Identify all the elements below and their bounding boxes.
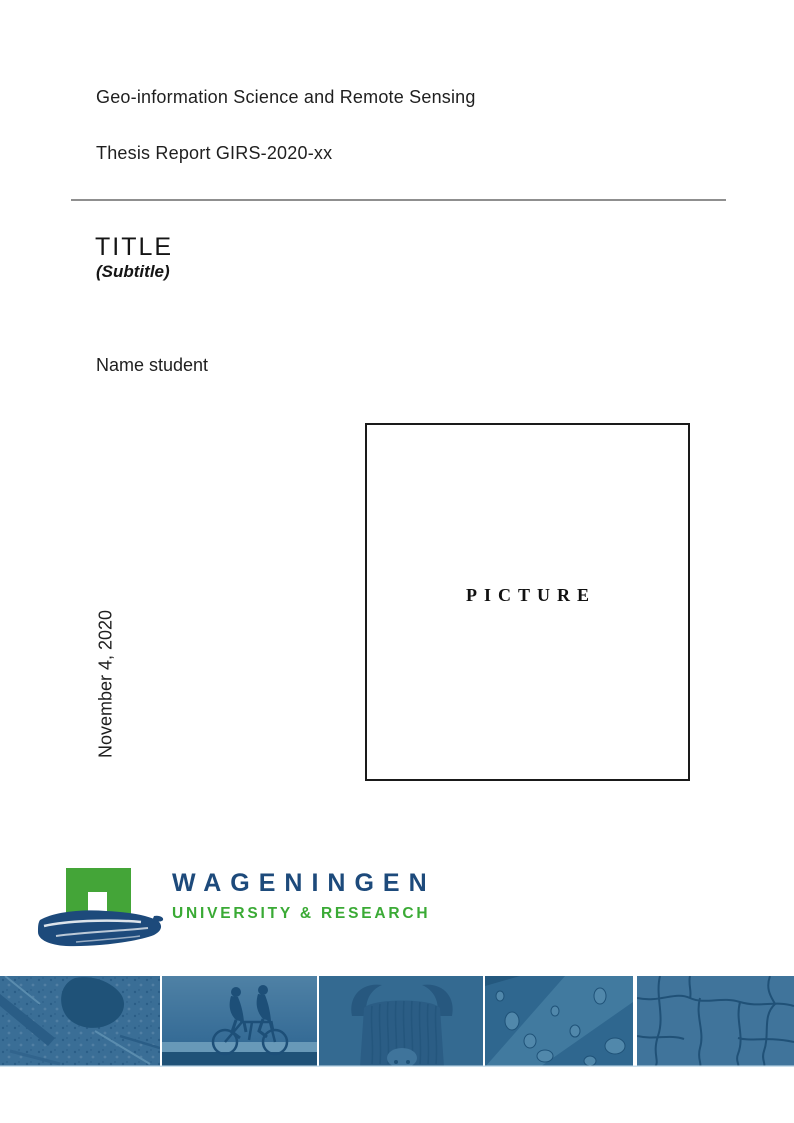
banner-photo-water-droplets [485,976,633,1067]
date-vertical: November 4, 2020 [96,610,117,758]
picture-placeholder-box: PICTURE [365,423,690,781]
thesis-title: TITLE [95,233,173,262]
footer-photo-banner [0,976,794,1067]
logo-wordmark: WAGENINGEN [172,869,436,898]
banner-photo-highland-cow [319,976,483,1067]
logo-tagline: UNIVERSITY & RESEARCH [172,905,430,923]
thesis-subtitle: (Subtitle) [96,262,170,282]
picture-placeholder-label: PICTURE [459,585,596,606]
program-name: Geo-information Science and Remote Sensi… [96,87,476,108]
wageningen-logo-icon [36,860,168,961]
banner-photo-aerial-map [0,976,160,1067]
banner-photo-tandem-cyclists [162,976,317,1067]
banner-photo-cracked-earth [637,976,794,1067]
author-name: Name student [96,355,208,376]
report-number: Thesis Report GIRS-2020-xx [96,143,332,164]
thesis-cover-page: Geo-information Science and Remote Sensi… [0,0,794,1123]
header-divider [71,199,726,201]
